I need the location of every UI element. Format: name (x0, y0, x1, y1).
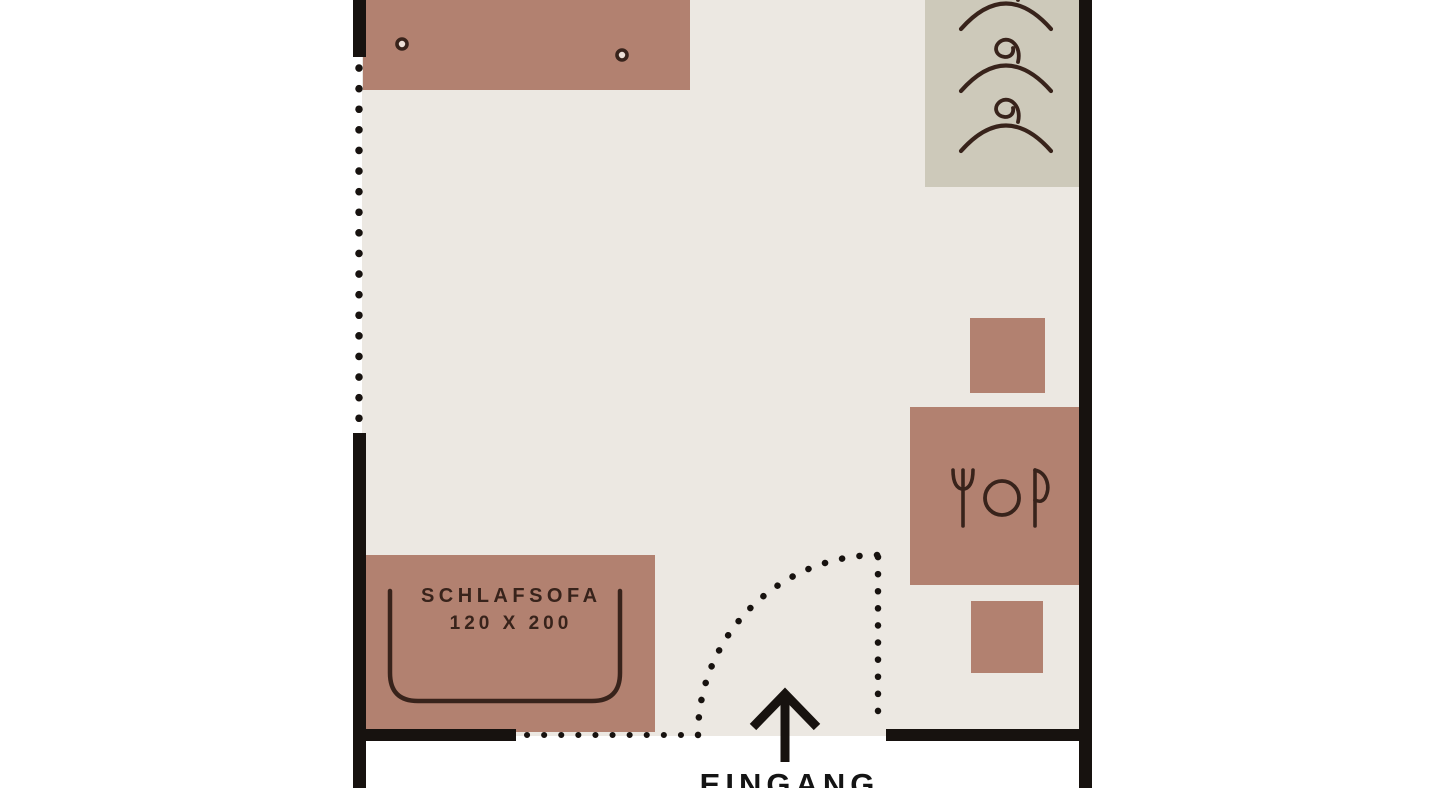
wall-bottom-right (886, 729, 1092, 741)
chair (970, 318, 1045, 393)
dining-table (910, 407, 1079, 585)
chair (971, 601, 1043, 673)
floor-plan-drawing (0, 0, 1440, 788)
sofa-label: SCHLAFSOFA 120 X 200 (363, 586, 655, 633)
wardrobe (925, 0, 1079, 187)
sofa-label-name: SCHLAFSOFA (363, 586, 655, 606)
kitchen-counter (363, 0, 690, 90)
floor-plan-stage: SCHLAFSOFA 120 X 200 EINGANG (0, 0, 1440, 788)
knob-icon (397, 39, 407, 49)
entrance-label: EINGANG (637, 769, 937, 788)
knob-icon (617, 50, 627, 60)
wall-left-top (353, 0, 366, 57)
wall-right (1079, 0, 1092, 788)
sofa-bed (363, 555, 655, 732)
sofa-label-size: 120 X 200 (363, 614, 655, 633)
wall-bottom-left (353, 729, 516, 741)
